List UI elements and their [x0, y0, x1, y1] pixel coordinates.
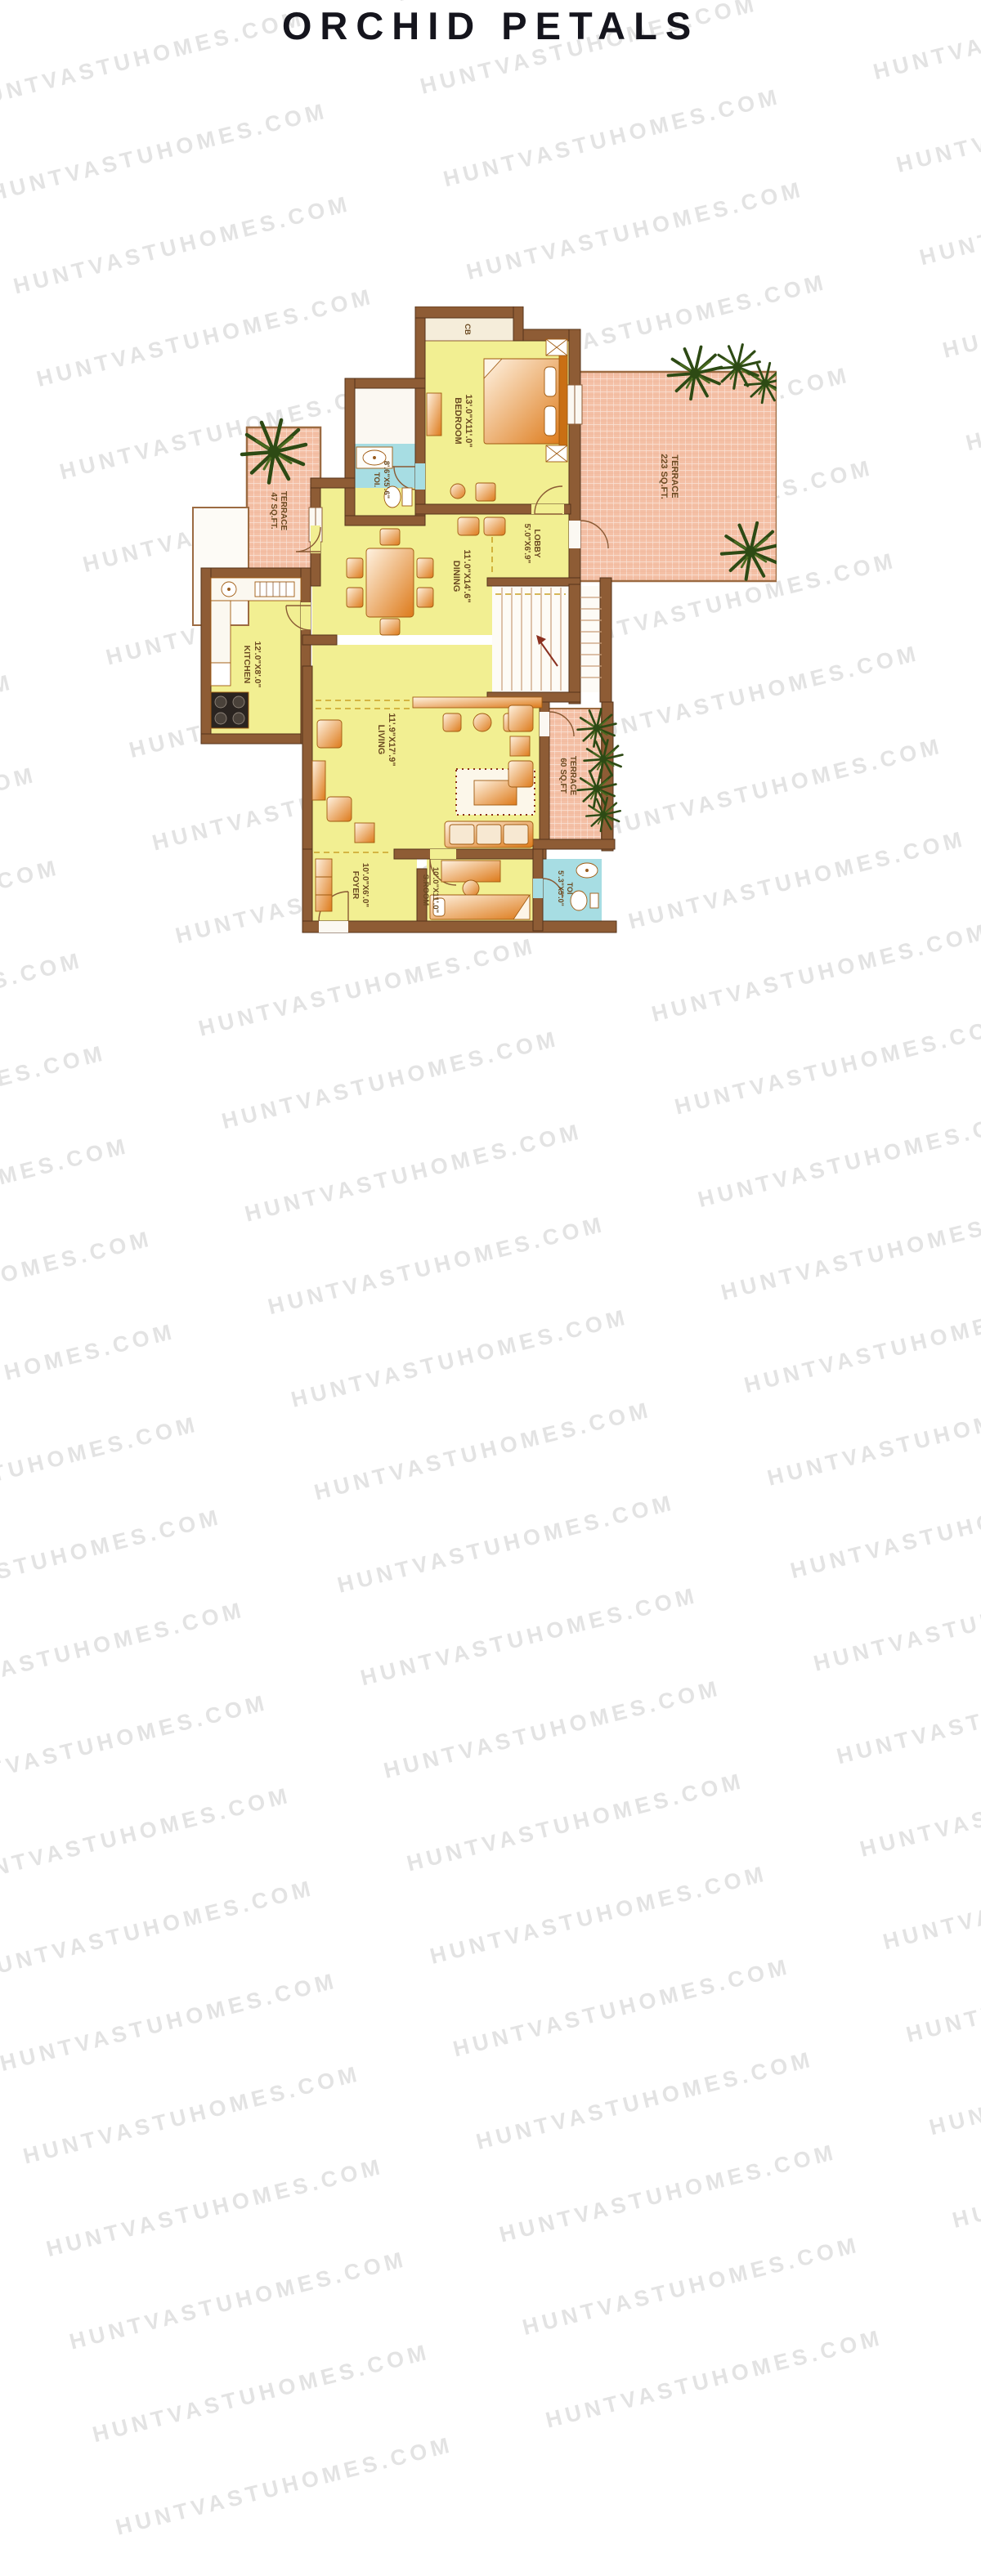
label-cupboard: CB [463, 324, 472, 335]
svg-text:10'.0"X11'.0": 10'.0"X11'.0" [431, 867, 440, 913]
sofa-icon [445, 821, 533, 847]
watermark-text: HUNTVASTUHOMES.COM [757, 1350, 981, 1523]
watermark-text: HUNTVASTUHOMES.COM [280, 1272, 639, 1444]
watermark-text: HUNTVASTUHOMES.COM [442, 1921, 801, 2094]
watermark-text: HUNTVASTUHOMES.COM [919, 2000, 981, 2172]
door-gap-toilet-2 [533, 879, 543, 898]
watermark-text: HUNTVASTUHOMES.COM [932, 222, 981, 395]
watermark-text: HUNTVASTUHOMES.COM [826, 1629, 981, 1801]
dresser-icon [427, 393, 441, 436]
watermark-text: HUNTVASTUHOMES.COM [432, 51, 791, 224]
page-title: ORCHID PETALS [0, 3, 981, 48]
armchair-icon [508, 705, 533, 731]
watermark-text: HUNTVASTUHOMES.COM [36, 2122, 395, 2294]
watermark-text: HUNTVASTUHOMES.COM [0, 1008, 117, 1180]
floor-plan: 13'.0"X11'.0" BEDROOM 8'.6"X5'.6" TOI. T… [188, 306, 777, 936]
watermark-text: HUNTVASTUHOMES.COM [0, 1286, 186, 1459]
svg-text:CB: CB [463, 324, 472, 335]
dress-area [355, 388, 415, 444]
label-terrace-47: TERRACE 47 SQ.FT. [269, 491, 288, 531]
svg-text:TOI.: TOI. [372, 472, 381, 487]
watermark-text: HUNTVASTUHOMES.COM [780, 1443, 981, 1616]
svg-text:TOI: TOI [566, 883, 574, 895]
label-lobby: LOBBY 5'.0"X6'.9" [522, 524, 541, 564]
stool-icon [450, 484, 465, 499]
watermark-text: HUNTVASTUHOMES.COM [0, 730, 47, 902]
svg-text:TERRACE: TERRACE [568, 756, 577, 796]
svg-text:5'.0"X6'.9": 5'.0"X6'.9" [522, 524, 531, 564]
watermark-text: HUNTVASTUHOMES.COM [0, 1472, 232, 1644]
watermark-text: HUNTVASTUHOMES.COM [419, 1828, 778, 2001]
svg-text:S.ROOM: S.ROOM [421, 874, 430, 906]
watermark-text: HUNTVASTUHOMES.COM [886, 37, 981, 209]
watermark-text: HUNTVASTUHOMES.COM [12, 2028, 371, 2201]
svg-text:TERRACE: TERRACE [670, 454, 679, 498]
watermark-text: HUNTVASTUHOMES.COM [733, 1258, 981, 1430]
armchair-icon [317, 720, 342, 748]
stove-icon [211, 692, 249, 728]
svg-text:LIVING: LIVING [376, 725, 386, 755]
svg-text:DINING: DINING [451, 561, 461, 593]
svg-text:12'.0"X8'.0": 12'.0"X8'.0" [253, 642, 262, 688]
watermark-text: HUNTVASTUHOMES.COM [0, 1101, 140, 1273]
watermark-text: HUNTVASTUHOMES.COM [489, 2107, 848, 2279]
stool-icon [473, 713, 491, 731]
side-cabinet-icon [312, 761, 325, 800]
watermark-text: HUNTVASTUHOMES.COM [211, 994, 570, 1166]
door-gap-s-room [430, 849, 456, 859]
watermark-text: HUNTVASTUHOMES.COM [0, 1657, 279, 1830]
door-gap-kitchen [301, 602, 311, 630]
watermark-text: HUNTVASTUHOMES.COM [0, 1936, 348, 2109]
watermark-text: HUNTVASTUHOMES.COM [0, 1564, 255, 1737]
svg-text:LOBBY: LOBBY [532, 530, 541, 558]
chair-icon [476, 483, 495, 501]
door-gap-lobby-terrace [569, 521, 580, 548]
watermark-text: HUNTVASTUHOMES.COM [0, 1751, 302, 1923]
svg-text:TERRACE: TERRACE [279, 491, 288, 531]
svg-text:BEDROOM: BEDROOM [453, 397, 463, 444]
side-table-icon [510, 736, 530, 756]
watermark-text: HUNTVASTUHOMES.COM [664, 979, 981, 1152]
bed-single-icon [430, 895, 530, 919]
watermark-text: HUNTVASTUHOMES.COM [235, 1086, 594, 1259]
label-terrace-223: TERRACE 223 SQ.FT. [659, 454, 679, 499]
watermark-text: HUNTVASTUHOMES.COM [0, 544, 1, 717]
floor-plan-svg: 13'.0"X11'.0" BEDROOM 8'.6"X5'.6" TOI. T… [188, 306, 777, 936]
staircase-landing [580, 586, 602, 692]
watermark-text: HUNTVASTUHOMES.COM [688, 1072, 981, 1245]
watermark-text: HUNTVASTUHOMES.COM [456, 144, 815, 316]
armchair-icon [508, 761, 533, 787]
washbasin-icon [576, 863, 598, 878]
svg-text:FOYER: FOYER [351, 871, 360, 900]
watermark-text: HUNTVASTUHOMES.COM [105, 2399, 464, 2572]
watermark-text: HUNTVASTUHOMES.COM [0, 915, 93, 1088]
watermark-text: HUNTVASTUHOMES.COM [0, 637, 24, 809]
bed-double-icon [484, 356, 567, 447]
label-terrace-60: TERRACE 60 SQ.FT [558, 756, 577, 796]
watermark-text: HUNTVASTUHOMES.COM [466, 2015, 825, 2187]
watermark-text: HUNTVASTUHOMES.COM [0, 1379, 209, 1551]
svg-text:11'.0"X14'.6": 11'.0"X14'.6" [462, 549, 472, 602]
watermark-text: HUNTVASTUHOMES.COM [942, 2092, 981, 2265]
watermark-text: HUNTVASTUHOMES.COM [373, 1643, 732, 1815]
watermark-text: HUNTVASTUHOMES.COM [0, 822, 70, 995]
watermark-text: HUNTVASTUHOMES.COM [955, 315, 981, 488]
watermark-text: HUNTVASTUHOMES.COM [710, 1165, 981, 1337]
door-gap-entry [319, 921, 348, 932]
watermark-text: HUNTVASTUHOMES.COM [849, 1721, 981, 1894]
svg-text:13'.0"X11'.0": 13'.0"X11'.0" [464, 394, 473, 447]
watermark-text: HUNTVASTUHOMES.COM [0, 1193, 163, 1366]
svg-text:5'.3"X5'.0": 5'.3"X5'.0" [557, 870, 565, 906]
door-gap-toilet-1 [415, 463, 425, 490]
door-gap-living-terrace [540, 712, 549, 736]
chair-icon [443, 713, 461, 731]
svg-text:KITCHEN: KITCHEN [242, 646, 252, 684]
svg-text:10'.0"X6'.0": 10'.0"X6'.0" [361, 863, 370, 908]
svg-text:8'.6"X5'.6": 8'.6"X5'.6" [382, 461, 391, 499]
watermark-text: HUNTVASTUHOMES.COM [59, 2214, 418, 2386]
door-gap-terrace-47 [311, 525, 320, 553]
svg-text:11'.9"X17'.9": 11'.9"X17'.9" [387, 713, 396, 766]
label-kitchen: 12'.0"X8'.0" KITCHEN [242, 642, 262, 688]
watermark-text: HUNTVASTUHOMES.COM [895, 1907, 981, 2079]
wc-icon [571, 891, 598, 910]
watermark-text: HUNTVASTUHOMES.COM [0, 65, 338, 238]
watermark-text: HUNTVASTUHOMES.COM [350, 1550, 709, 1723]
foyer-cabinet-icon [316, 859, 332, 911]
watermark-text: HUNTVASTUHOMES.COM [396, 1736, 755, 1908]
watermark-text: HUNTVASTUHOMES.COM [909, 130, 981, 302]
watermark-text: HUNTVASTUHOMES.COM [327, 1457, 686, 1630]
svg-text:47 SQ.FT.: 47 SQ.FT. [269, 492, 278, 529]
chair-icon [458, 517, 479, 535]
armchair-icon [327, 797, 352, 821]
watermark-text: HUNTVASTUHOMES.COM [2, 159, 361, 331]
watermark-text: HUNTVASTUHOMES.COM [82, 2307, 441, 2480]
label-bedroom: 13'.0"X11'.0" BEDROOM [453, 394, 473, 447]
watermark-text: HUNTVASTUHOMES.COM [258, 1179, 616, 1352]
staircase-area [492, 586, 569, 692]
chair-icon [484, 517, 505, 535]
svg-text:60 SQ.FT: 60 SQ.FT [558, 758, 567, 793]
watermark-text: HUNTVASTUHOMES.COM [803, 1536, 981, 1708]
watermark-text: HUNTVASTUHOMES.COM [303, 1365, 662, 1537]
watermark-text: HUNTVASTUHOMES.COM [872, 1814, 981, 1987]
watermark-text: HUNTVASTUHOMES.COM [512, 2200, 871, 2373]
svg-text:223 SQ.FT.: 223 SQ.FT. [659, 454, 669, 499]
side-table-icon [355, 823, 374, 843]
watermark-text: HUNTVASTUHOMES.COM [0, 1843, 325, 2015]
watermark-text: HUNTVASTUHOMES.COM [535, 2292, 894, 2465]
